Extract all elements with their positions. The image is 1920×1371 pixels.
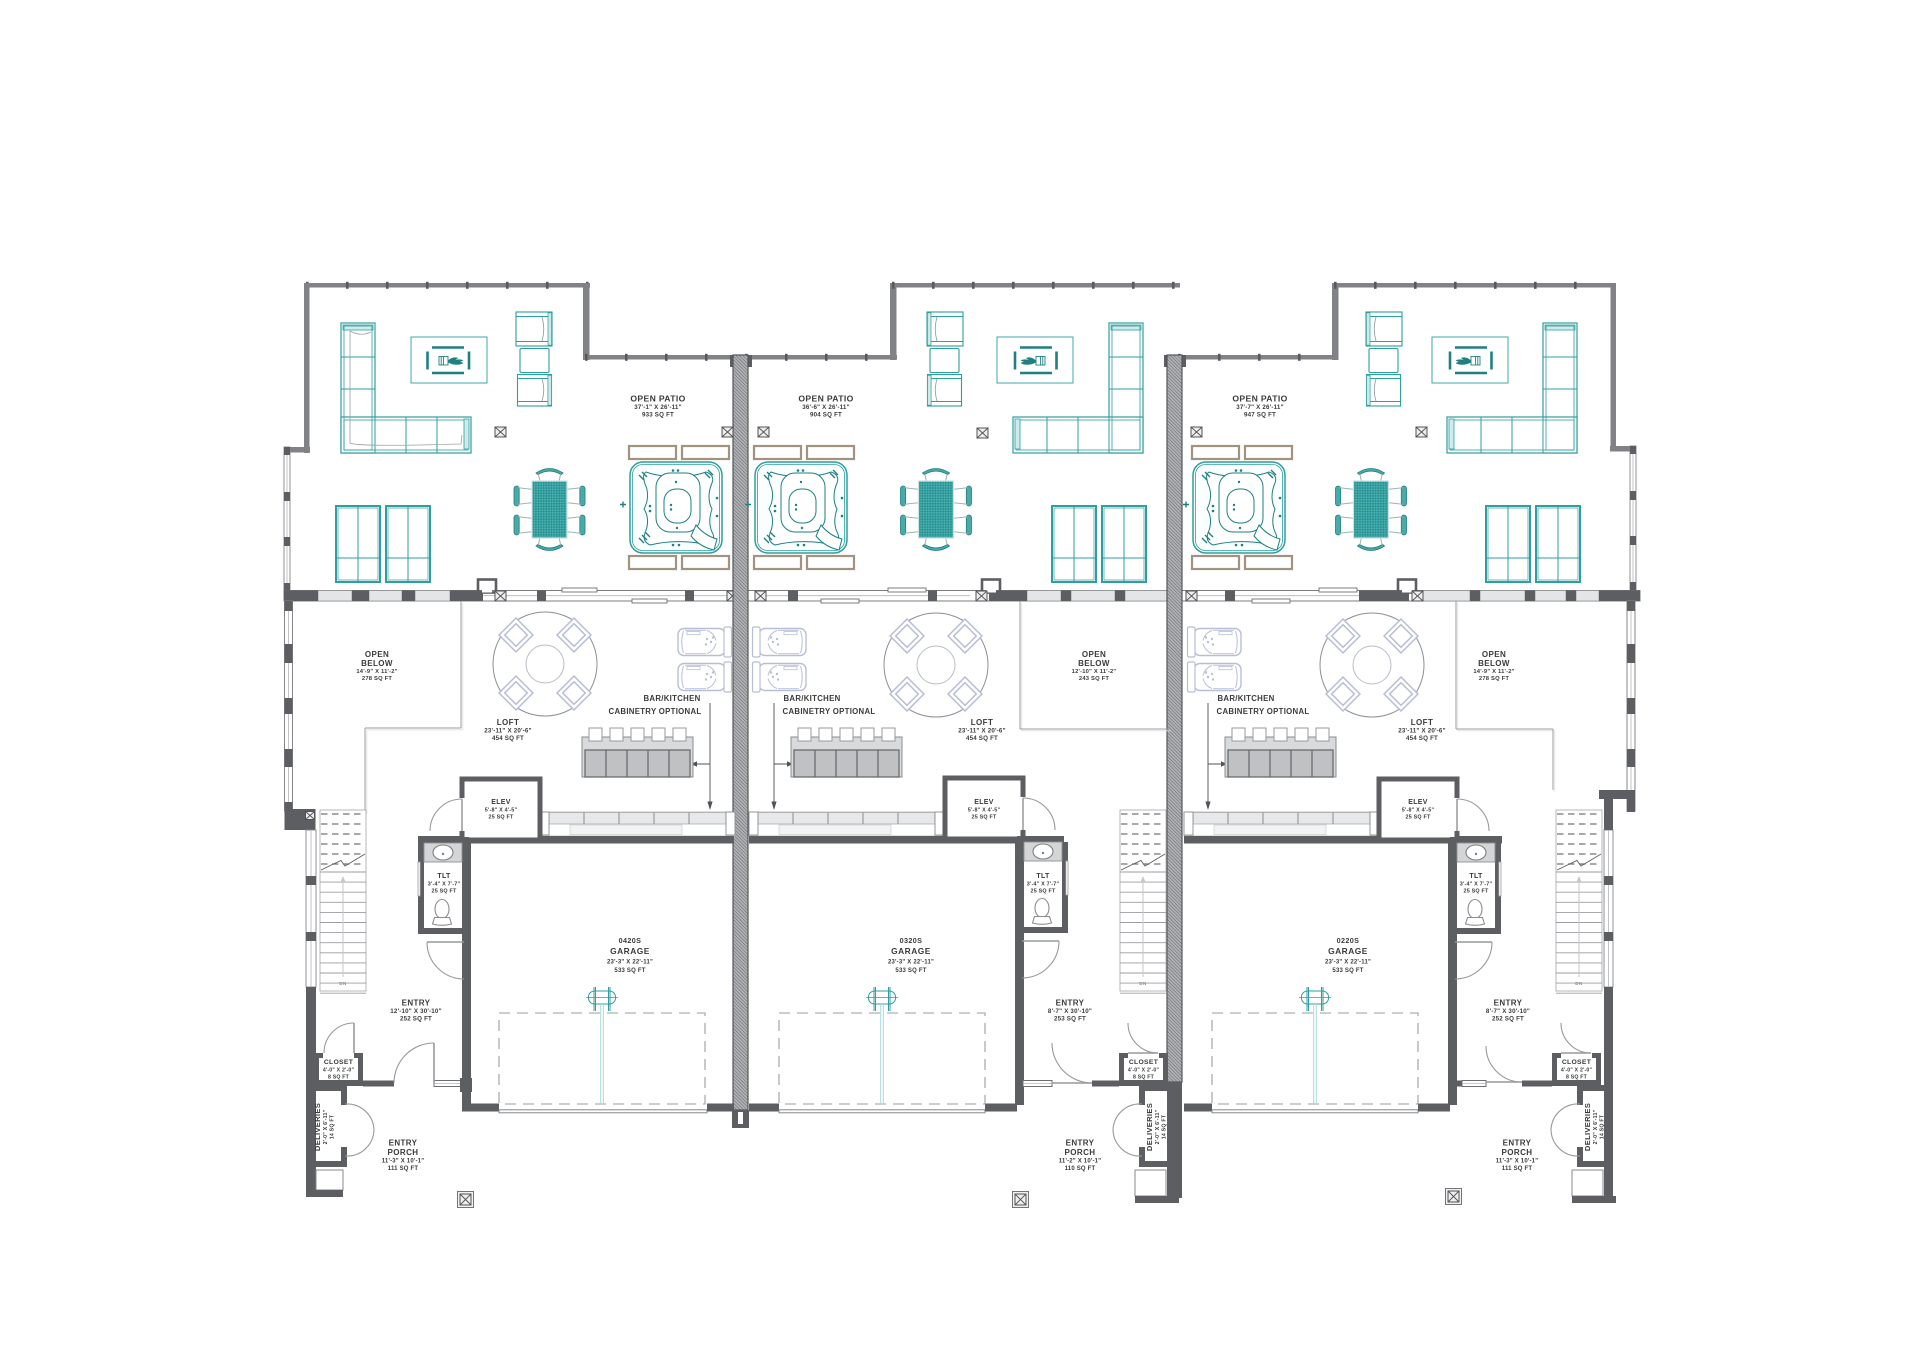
svg-text:8 SQ FT: 8 SQ FT xyxy=(1133,1075,1155,1081)
svg-text:4'-0" X 2'-0": 4'-0" X 2'-0" xyxy=(323,1068,355,1074)
svg-text:4'-0" X 2'-0": 4'-0" X 2'-0" xyxy=(1128,1068,1160,1074)
svg-text:LOFT: LOFT xyxy=(1411,718,1433,727)
svg-text:5'-8" X 4'-5": 5'-8" X 4'-5" xyxy=(485,808,518,814)
svg-text:533 SQ FT: 533 SQ FT xyxy=(1332,968,1363,974)
svg-text:CLOSET: CLOSET xyxy=(1129,1059,1159,1066)
svg-text:252 SQ FT: 252 SQ FT xyxy=(400,1016,432,1023)
svg-text:23'-11" X 20'-6": 23'-11" X 20'-6" xyxy=(958,728,1005,735)
svg-text:BELOW: BELOW xyxy=(361,659,393,668)
svg-text:BAR/KITCHEN: BAR/KITCHEN xyxy=(1217,694,1274,703)
svg-text:278 SQ FT: 278 SQ FT xyxy=(1479,676,1509,682)
svg-text:23'-3" X 22'-11": 23'-3" X 22'-11" xyxy=(888,960,934,966)
svg-text:ELEV: ELEV xyxy=(491,799,511,806)
svg-text:37'-7" X 26'-11": 37'-7" X 26'-11" xyxy=(1236,404,1283,411)
svg-text:0320S: 0320S xyxy=(900,936,923,945)
svg-text:OPEN: OPEN xyxy=(1082,650,1106,659)
svg-text:5'-8" X 4'-5": 5'-8" X 4'-5" xyxy=(968,808,1001,814)
svg-text:OPEN: OPEN xyxy=(365,650,389,659)
svg-text:ENTRY: ENTRY xyxy=(1066,1139,1095,1148)
svg-text:GARAGE: GARAGE xyxy=(891,946,931,956)
svg-text:OPEN PATIO: OPEN PATIO xyxy=(1232,394,1287,404)
svg-text:OPEN PATIO: OPEN PATIO xyxy=(630,394,685,404)
svg-text:3'-4" X 7'-7": 3'-4" X 7'-7" xyxy=(1027,882,1060,888)
svg-text:37'-1" X 26'-11": 37'-1" X 26'-11" xyxy=(634,404,681,411)
svg-text:0420S: 0420S xyxy=(619,936,642,945)
svg-text:23'-11" X 20'-6": 23'-11" X 20'-6" xyxy=(1398,728,1445,735)
svg-text:TLT: TLT xyxy=(1036,873,1050,880)
svg-text:PORCH: PORCH xyxy=(1502,1148,1533,1157)
svg-text:OPEN: OPEN xyxy=(1482,650,1506,659)
svg-text:TLT: TLT xyxy=(437,873,451,880)
svg-text:DELIVERIES: DELIVERIES xyxy=(1145,1103,1154,1151)
svg-text:243 SQ FT: 243 SQ FT xyxy=(1079,676,1109,682)
svg-text:ENTRY: ENTRY xyxy=(1494,999,1523,1008)
svg-text:8 SQ FT: 8 SQ FT xyxy=(328,1075,350,1081)
svg-text:2'-0" X 6'-11": 2'-0" X 6'-11" xyxy=(1155,1109,1161,1144)
svg-text:14'-9" X 11'-2": 14'-9" X 11'-2" xyxy=(356,669,397,675)
svg-text:23'-11" X 20'-6": 23'-11" X 20'-6" xyxy=(484,728,531,735)
svg-text:CABINETRY OPTIONAL: CABINETRY OPTIONAL xyxy=(783,707,876,716)
svg-text:12'-10" X 30'-10": 12'-10" X 30'-10" xyxy=(390,1008,441,1015)
svg-text:0220S: 0220S xyxy=(1337,936,1360,945)
svg-text:25 SQ FT: 25 SQ FT xyxy=(489,815,514,821)
svg-text:CABINETRY OPTIONAL: CABINETRY OPTIONAL xyxy=(609,707,702,716)
svg-text:454 SQ FT: 454 SQ FT xyxy=(492,735,524,742)
svg-text:533 SQ FT: 533 SQ FT xyxy=(614,968,645,974)
svg-text:110 SQ FT: 110 SQ FT xyxy=(1065,1166,1096,1172)
svg-text:3'-4" X 7'-7": 3'-4" X 7'-7" xyxy=(428,882,461,888)
svg-text:CLOSET: CLOSET xyxy=(1562,1059,1592,1066)
svg-text:5'-8" X 4'-5": 5'-8" X 4'-5" xyxy=(1402,808,1435,814)
svg-text:ENTRY: ENTRY xyxy=(1056,999,1085,1008)
svg-text:CLOSET: CLOSET xyxy=(324,1059,354,1066)
svg-text:11'-2" X 10'-1": 11'-2" X 10'-1" xyxy=(1059,1159,1102,1165)
svg-text:36'-6" X 26'-11": 36'-6" X 26'-11" xyxy=(802,404,849,411)
svg-text:11'-3" X 10'-1": 11'-3" X 10'-1" xyxy=(1496,1159,1539,1165)
svg-text:4'-0" X 2'-0": 4'-0" X 2'-0" xyxy=(1561,1068,1593,1074)
svg-text:8 SQ FT: 8 SQ FT xyxy=(1566,1075,1588,1081)
svg-text:BAR/KITCHEN: BAR/KITCHEN xyxy=(783,694,840,703)
svg-text:DELIVERIES: DELIVERIES xyxy=(313,1103,322,1151)
svg-text:904 SQ FT: 904 SQ FT xyxy=(810,412,842,419)
svg-text:ELEV: ELEV xyxy=(974,799,994,806)
svg-text:GARAGE: GARAGE xyxy=(610,946,650,956)
svg-text:454 SQ FT: 454 SQ FT xyxy=(966,735,998,742)
svg-text:DN: DN xyxy=(1139,981,1147,986)
svg-text:ELEV: ELEV xyxy=(1408,799,1428,806)
svg-text:23'-3" X 22'-11": 23'-3" X 22'-11" xyxy=(1325,960,1371,966)
svg-text:ENTRY: ENTRY xyxy=(389,1139,418,1148)
svg-text:454 SQ FT: 454 SQ FT xyxy=(1406,735,1438,742)
svg-text:3'-4" X 7'-7": 3'-4" X 7'-7" xyxy=(1460,882,1493,888)
svg-text:111 SQ FT: 111 SQ FT xyxy=(1502,1166,1533,1172)
svg-text:BELOW: BELOW xyxy=(1078,659,1110,668)
svg-text:DN: DN xyxy=(339,981,347,986)
svg-text:25 SQ FT: 25 SQ FT xyxy=(1464,889,1489,895)
svg-text:278 SQ FT: 278 SQ FT xyxy=(362,676,392,682)
svg-text:533 SQ FT: 533 SQ FT xyxy=(895,968,926,974)
svg-text:OPEN PATIO: OPEN PATIO xyxy=(798,394,853,404)
svg-text:TLT: TLT xyxy=(1469,873,1483,880)
svg-text:PORCH: PORCH xyxy=(1065,1148,1096,1157)
svg-text:PORCH: PORCH xyxy=(388,1148,419,1157)
svg-text:252 SQ FT: 252 SQ FT xyxy=(1492,1016,1524,1023)
svg-text:947 SQ FT: 947 SQ FT xyxy=(1244,412,1276,419)
svg-text:GARAGE: GARAGE xyxy=(1328,946,1368,956)
svg-text:2'-0" X 6'-11": 2'-0" X 6'-11" xyxy=(323,1109,329,1144)
svg-text:8'-7" X 30'-10": 8'-7" X 30'-10" xyxy=(1486,1008,1530,1015)
svg-text:ENTRY: ENTRY xyxy=(402,999,431,1008)
svg-text:DELIVERIES: DELIVERIES xyxy=(1583,1103,1592,1151)
svg-text:BAR/KITCHEN: BAR/KITCHEN xyxy=(643,694,700,703)
svg-text:12'-10" X 11'-2": 12'-10" X 11'-2" xyxy=(1072,669,1117,675)
svg-text:BELOW: BELOW xyxy=(1478,659,1510,668)
svg-text:CABINETRY OPTIONAL: CABINETRY OPTIONAL xyxy=(1217,707,1310,716)
svg-text:2'-0" X 6'-11": 2'-0" X 6'-11" xyxy=(1593,1109,1599,1144)
svg-text:25 SQ FT: 25 SQ FT xyxy=(1031,889,1056,895)
svg-text:LOFT: LOFT xyxy=(497,718,519,727)
svg-text:14'-9" X 11'-2": 14'-9" X 11'-2" xyxy=(1473,669,1514,675)
svg-text:DN: DN xyxy=(1575,981,1583,986)
svg-text:253 SQ FT: 253 SQ FT xyxy=(1054,1016,1086,1023)
svg-text:14 SQ FT: 14 SQ FT xyxy=(330,1114,336,1139)
svg-text:8'-7" X 30'-10": 8'-7" X 30'-10" xyxy=(1048,1008,1092,1015)
svg-text:25 SQ FT: 25 SQ FT xyxy=(972,815,997,821)
svg-text:933 SQ FT: 933 SQ FT xyxy=(642,412,674,419)
svg-text:14 SQ FT: 14 SQ FT xyxy=(1162,1114,1168,1139)
svg-text:25 SQ FT: 25 SQ FT xyxy=(1406,815,1431,821)
svg-text:11'-3" X 10'-1": 11'-3" X 10'-1" xyxy=(382,1159,425,1165)
svg-text:25 SQ FT: 25 SQ FT xyxy=(432,889,457,895)
svg-text:111 SQ FT: 111 SQ FT xyxy=(388,1166,419,1172)
svg-text:23'-3" X 22'-11": 23'-3" X 22'-11" xyxy=(607,960,653,966)
svg-text:LOFT: LOFT xyxy=(971,718,993,727)
svg-text:ENTRY: ENTRY xyxy=(1503,1139,1532,1148)
